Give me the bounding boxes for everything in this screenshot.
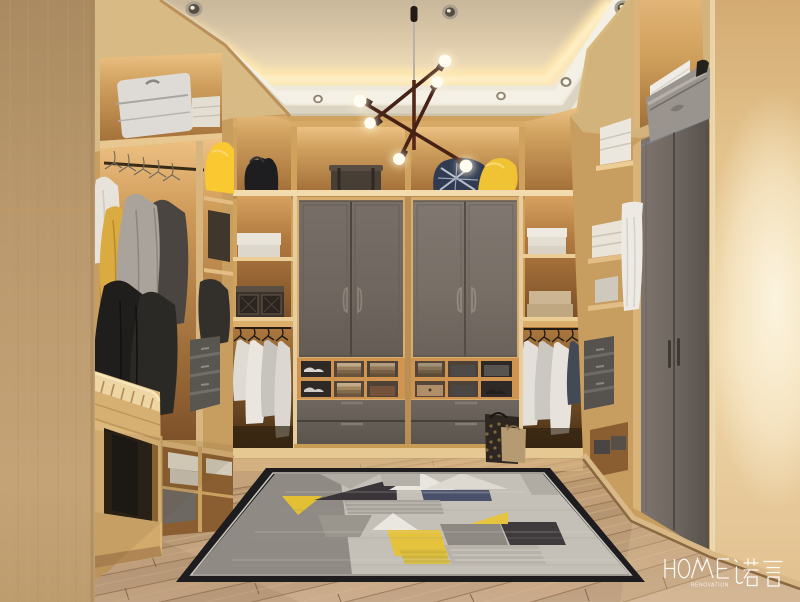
svg-text:RENOVATION: RENOVATION [691, 583, 729, 589]
